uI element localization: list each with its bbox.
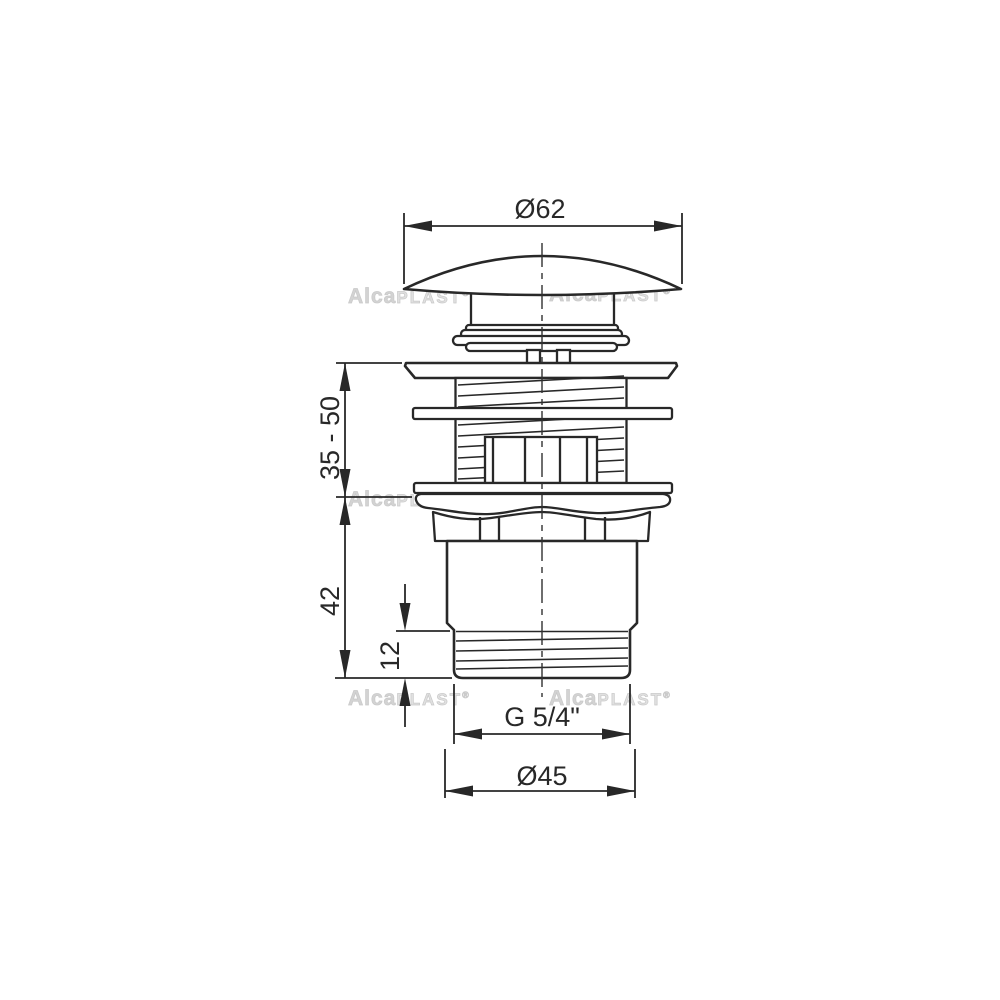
arrowhead-down [340, 650, 351, 678]
dimension-label: Ø45 [516, 761, 567, 791]
arrowhead-right [602, 729, 630, 740]
dimension-body-diameter: Ø45 [445, 749, 635, 798]
waste-valve-diagram: AlcaPLAST® AlcaPLAST® AlcaPLAST® AlcaPLA… [0, 0, 1000, 1000]
top-flange [405, 363, 677, 378]
dimension-label: G 5/4" [504, 702, 580, 732]
arrowhead-left [445, 786, 473, 797]
dimension-label: Ø62 [514, 194, 565, 224]
dimension-height-range: 35 - 50 [315, 363, 412, 497]
arrowhead-left [454, 729, 482, 740]
overflow-slot-box [485, 437, 597, 483]
technical-drawing-canvas: AlcaPLAST® AlcaPLAST® AlcaPLAST® AlcaPLA… [0, 0, 1000, 1000]
arrowhead-left [404, 221, 432, 232]
dimension-label: 35 - 50 [315, 396, 345, 480]
bottom-washer [414, 483, 672, 493]
arrowhead-up [340, 363, 351, 391]
arrowhead-right [654, 221, 682, 232]
dimension-label: 42 [315, 586, 345, 616]
arrowhead-down [400, 603, 411, 631]
dimension-label: 12 [375, 641, 405, 671]
valve-drawing [404, 243, 681, 697]
arrowhead-right [607, 786, 635, 797]
